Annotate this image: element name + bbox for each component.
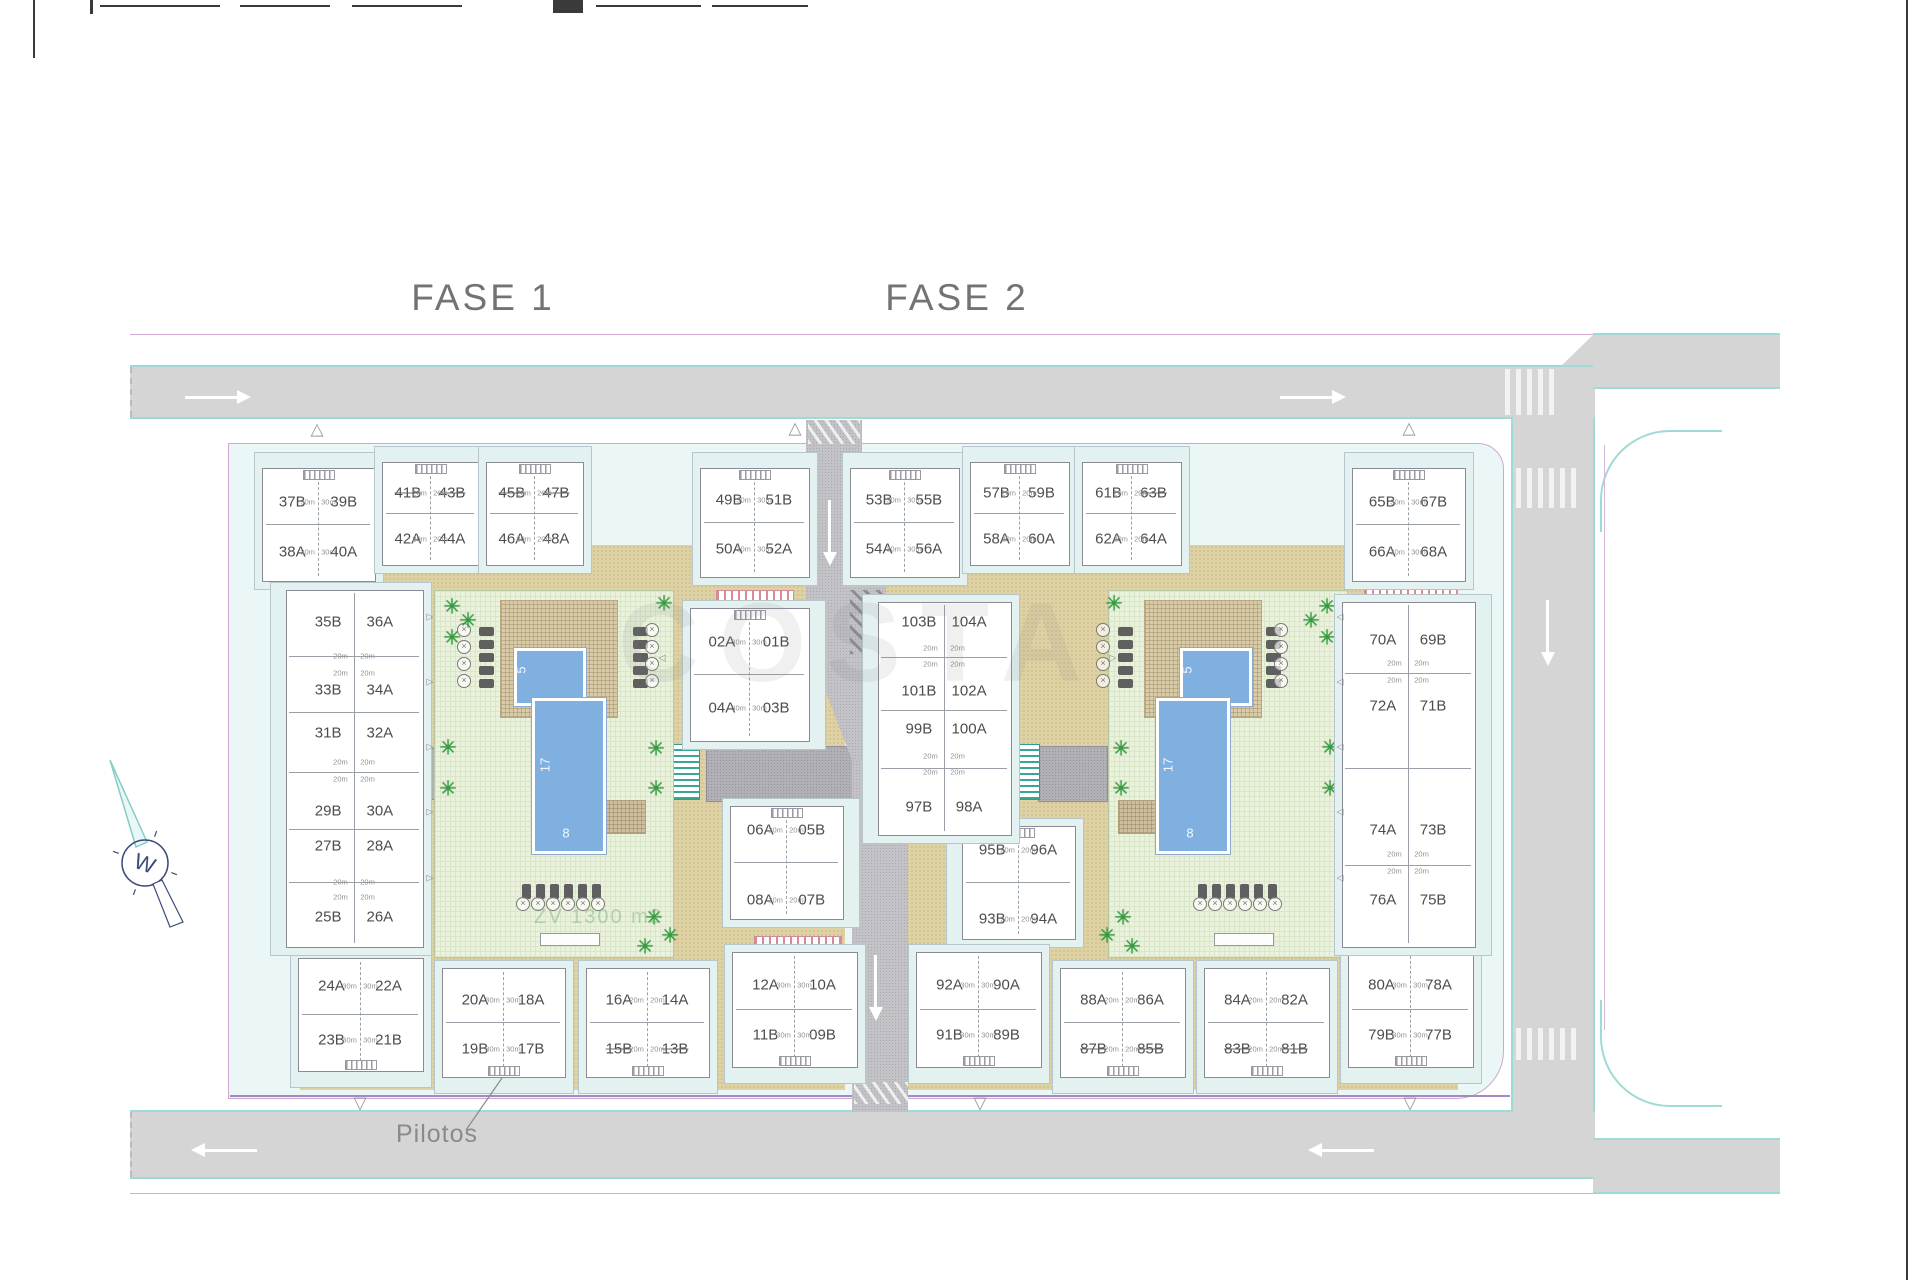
parasol-icon: × (1253, 897, 1267, 911)
wall-line (704, 522, 804, 523)
unit-label: 92A (936, 978, 963, 993)
area-label: 30m 30m (1392, 981, 1427, 989)
unit-label: 28A (366, 839, 393, 854)
unit-label: 73B (1420, 823, 1447, 838)
road-edge (1593, 333, 1780, 335)
palm-tree-icon: ✳ (1114, 908, 1132, 929)
door-triangle-icon: ◁ (1337, 874, 1344, 883)
compass-icon: W (50, 735, 190, 955)
palm-tree-icon: ✳ (1112, 779, 1130, 800)
parasol-icon: × (1208, 897, 1222, 911)
stairs-icon (963, 1056, 995, 1066)
stairs-icon (345, 1060, 377, 1070)
area-label: 20m 20m (333, 893, 375, 901)
unit-label: 72A (1370, 699, 1397, 714)
area-label: 30m 30m (886, 497, 921, 505)
unit-label: 87B (1080, 1042, 1107, 1057)
unit-label: 76A (1370, 893, 1397, 908)
unit-block (382, 462, 480, 566)
area-label: 20m 20m (1104, 997, 1139, 1005)
road-arrow-icon (823, 552, 837, 566)
wall-line (734, 862, 838, 863)
area-label: 20m 20m (333, 669, 375, 677)
give-way-chevrons (808, 420, 860, 444)
unit-label: 80A (1368, 978, 1395, 993)
wall-line (966, 882, 1070, 883)
unit-block (298, 958, 424, 1072)
stairs-icon (1393, 470, 1425, 480)
unit-label: 98A (956, 800, 983, 815)
pool-dim-width: 8 (562, 826, 569, 841)
area-label: 20m 20m (1387, 659, 1429, 667)
deck-patch (1118, 800, 1160, 834)
unit-label: 85B (1137, 1042, 1164, 1057)
area-label: 30m 30m (776, 1031, 811, 1039)
unit-label: 89B (993, 1028, 1020, 1043)
area-label: 30m 30m (300, 548, 335, 556)
palm-tree-icon: ✳ (1098, 926, 1116, 947)
road-bottom-east (1593, 1140, 1780, 1192)
parasol-icon: × (1274, 657, 1288, 671)
unit-label: 70A (1370, 633, 1397, 648)
unit-block (586, 968, 710, 1078)
unit-block (1204, 968, 1330, 1078)
unit-label: 91B (936, 1028, 963, 1043)
road-arrow-icon (1332, 390, 1346, 404)
unit-label: 12A (752, 978, 779, 993)
palm-tree-icon: ✳ (443, 597, 461, 618)
door-triangle-icon: ◁ (1337, 808, 1344, 817)
unit-label: 32A (366, 726, 393, 741)
frame-mark (712, 5, 808, 7)
site-plan: FASE 1 FASE 2 1785××××××××××××××✳✳✳✳✳✳✳✳… (0, 0, 1920, 1280)
area-label: 20m 20m (333, 652, 375, 660)
wall-line (354, 593, 355, 943)
road-arrow-icon (869, 1007, 883, 1021)
parcel-line (1604, 445, 1605, 1030)
unit-label: 14A (662, 993, 689, 1008)
pool-dim-length: 17 (538, 758, 553, 772)
road-edge (1593, 417, 1595, 1112)
wall-line (302, 1014, 418, 1015)
parasol-icon: × (1238, 897, 1252, 911)
road-edge (130, 365, 1593, 367)
wall-line (289, 712, 419, 713)
area-label: 20m 20m (1000, 846, 1035, 854)
area-label: 30m 30m (736, 497, 771, 505)
area-label: 20m 20m (768, 826, 803, 834)
stairs-icon (1004, 464, 1036, 474)
pool-dim-kids: 5 (514, 666, 529, 673)
lounger (1118, 666, 1133, 675)
fase1-title: FASE 1 (411, 277, 554, 319)
unit-block (1060, 968, 1186, 1078)
area-label: 20m 20m (1104, 1045, 1139, 1053)
unit-label: 33B (315, 683, 342, 698)
unit-label: 81B (1281, 1042, 1308, 1057)
wall-line (1345, 768, 1471, 769)
unit-label: 79B (1368, 1028, 1395, 1043)
parasol-icon: × (1274, 640, 1288, 654)
unit-label: 26A (366, 910, 393, 925)
lounger (479, 679, 494, 688)
area-label: 20m 20m (333, 775, 375, 783)
pool-bench (540, 933, 600, 946)
unit-label: 90A (993, 978, 1020, 993)
road-edge (1593, 1192, 1780, 1194)
wall-line (1208, 1022, 1324, 1023)
stairs-icon (415, 464, 447, 474)
area-label: 20m 20m (412, 535, 447, 543)
stairs-icon (1116, 464, 1148, 474)
unit-label: 74A (1370, 823, 1397, 838)
unit-label: 71B (1420, 699, 1447, 714)
unit-label: 84A (1224, 993, 1251, 1008)
area-label: 20m 20m (412, 489, 447, 497)
unit-label: 30A (366, 804, 393, 819)
stairs-icon (519, 464, 551, 474)
unit-label: 83B (1224, 1042, 1251, 1057)
lounger (479, 653, 494, 662)
unit-label: 20A (462, 993, 489, 1008)
door-triangle-icon: ◁ (1337, 613, 1344, 622)
parasol-icon: × (1223, 897, 1237, 911)
crosswalk (1505, 369, 1559, 415)
lounger (479, 666, 494, 675)
door-triangle-icon: ▷ (427, 874, 434, 883)
road-arrow-icon (874, 955, 877, 1007)
palm-tree-icon: ✳ (1112, 739, 1130, 760)
palm-tree-icon: ✳ (439, 779, 457, 800)
wall-line (289, 829, 419, 830)
frame-mark (90, 0, 93, 14)
palm-tree-icon: ✳ (459, 611, 477, 632)
parcel-corner-ne (1600, 430, 1722, 532)
lounger (1118, 653, 1133, 662)
unit-label: 69B (1420, 633, 1447, 648)
road-arrow-icon (1308, 1143, 1322, 1157)
palm-tree-icon: ✳ (443, 628, 461, 649)
unit-label: 97B (906, 800, 933, 815)
fase2-title: FASE 2 (885, 277, 1028, 319)
entry-triangle-icon: ▽ (353, 1095, 366, 1112)
unit-block (442, 968, 566, 1078)
crosswalk (1516, 1028, 1578, 1060)
unit-label: 17B (518, 1042, 545, 1057)
pool-dim-length: 17 (1161, 758, 1176, 772)
parasol-icon: × (1274, 674, 1288, 688)
unit-label: 31B (315, 726, 342, 741)
unit-label: 88A (1080, 993, 1107, 1008)
unit-label: 24A (318, 979, 345, 994)
pergola-bench (670, 744, 700, 800)
palm-tree-icon: ✳ (647, 779, 665, 800)
road-edge (130, 1110, 1513, 1112)
area-label: 20m 20m (516, 535, 551, 543)
palm-tree-icon: ✳ (636, 937, 654, 958)
wall-line (446, 1022, 560, 1023)
frame-mark (240, 5, 330, 7)
area-label: 30m 30m (485, 997, 520, 1005)
road-edge (130, 417, 1513, 419)
parasol-icon: × (1268, 897, 1282, 911)
area-label: 30m 30m (776, 981, 811, 989)
area-label: 30m 30m (1392, 1031, 1427, 1039)
road-arrow-icon (185, 396, 237, 399)
door-triangle-icon: ◁ (1337, 678, 1344, 687)
road-arrow-icon (1541, 652, 1555, 666)
lounger (1118, 640, 1133, 649)
wall-line (266, 524, 370, 525)
wall-line (1086, 513, 1176, 514)
unit-block (916, 952, 1042, 1068)
wall-line (881, 710, 1007, 711)
pedestrian-path (1038, 746, 1108, 802)
door-triangle-icon: ▷ (427, 808, 434, 817)
unit-label: 11B (753, 1028, 779, 1043)
area-label: 30m 30m (342, 1036, 377, 1044)
road-top-east (1593, 335, 1780, 387)
wall-line (974, 513, 1064, 514)
wall-line (590, 1022, 704, 1023)
area-label: 20m 20m (1001, 489, 1036, 497)
stairs-icon (1395, 1056, 1427, 1066)
area-label: 20m 20m (629, 1045, 664, 1053)
parasol-icon: × (457, 674, 471, 688)
pool-dim-kids: 5 (1180, 666, 1195, 673)
area-label: 20m 20m (333, 878, 375, 886)
door-triangle-icon: ◁ (1337, 743, 1344, 752)
unit-label: 27B (315, 839, 342, 854)
road-arrow-icon (1322, 1149, 1374, 1152)
stairs-icon (488, 1066, 520, 1076)
entry-triangle-icon: ▽ (973, 1095, 986, 1112)
unit-label: 29B (315, 804, 342, 819)
stairs-icon (771, 808, 803, 818)
stairs-icon (1251, 1066, 1283, 1076)
area-label: 30m 30m (960, 981, 995, 989)
crosswalk (1516, 468, 1578, 508)
palm-tree-icon: ✳ (439, 738, 457, 759)
lounger (1118, 627, 1133, 636)
area-label: 20m 20m (1387, 850, 1429, 858)
frame-mark (100, 5, 220, 7)
door-triangle-icon: ▷ (427, 743, 434, 752)
unit-label: 15B (606, 1042, 633, 1057)
area-label: 30m 30m (1390, 548, 1425, 556)
unit-label: 13B (662, 1042, 689, 1057)
lounger (479, 640, 494, 649)
wall-line (490, 513, 578, 514)
palm-tree-icon: ✳ (647, 739, 665, 760)
entry-triangle-icon: △ (788, 420, 801, 437)
entry-triangle-icon: ▽ (1403, 1095, 1416, 1112)
unit-label: 22A (375, 979, 402, 994)
unit-label: 100A (952, 722, 987, 737)
entry-triangle-icon: △ (310, 421, 323, 438)
lounger (1118, 679, 1133, 688)
unit-label: 23B (318, 1032, 345, 1047)
area-label: 20m 20m (923, 768, 965, 776)
area-label: 20m 20m (1248, 1045, 1283, 1053)
road-bottom (130, 1112, 1595, 1177)
area-label: 30m 30m (736, 545, 771, 553)
entry-triangle-icon: △ (1402, 420, 1415, 437)
unit-block (262, 468, 376, 582)
area-label: 20m 20m (1001, 535, 1036, 543)
stairs-icon (303, 470, 335, 480)
deck-patch (604, 800, 646, 834)
unit-label: 36A (366, 615, 393, 630)
unit-label: 86A (1137, 993, 1164, 1008)
unit-label: 21B (375, 1032, 402, 1047)
unit-block (732, 952, 858, 1068)
palm-tree-icon: ✳ (1123, 937, 1141, 958)
road-edge (130, 1177, 1593, 1179)
green-area-label: ZV 1300 m2 (534, 906, 663, 929)
road-arrow-icon (1280, 396, 1332, 399)
unit-label: 35B (315, 615, 342, 630)
stairs-icon (779, 1056, 811, 1066)
area-label: 20m 20m (768, 896, 803, 904)
unit-label: 19B (462, 1042, 489, 1057)
stairs-icon (739, 470, 771, 480)
area-label: 20m 20m (333, 758, 375, 766)
wall-line (1345, 673, 1471, 674)
frame-mark (596, 5, 701, 7)
unit-label: 99B (906, 722, 933, 737)
frame-mark (553, 0, 583, 13)
unit-label: 34A (366, 683, 393, 698)
wall-line (736, 1009, 852, 1010)
wall-line (1408, 605, 1409, 943)
area-label: 20m 20m (516, 489, 551, 497)
unit-label: 16A (606, 993, 633, 1008)
unit-block (1348, 952, 1474, 1068)
area-label: 30m 30m (1390, 498, 1425, 506)
road-top (130, 367, 1595, 417)
wall-line (854, 522, 954, 523)
palm-tree-icon: ✳ (1105, 594, 1123, 615)
area-label: 30m 30m (300, 498, 335, 506)
parasol-icon: × (457, 657, 471, 671)
wall-line (1064, 1022, 1180, 1023)
unit-label: 75B (1420, 893, 1447, 908)
unit-block (1082, 462, 1182, 566)
wall-line (1352, 1009, 1468, 1010)
road-top-chamfer (1560, 335, 1593, 367)
unit-label: 78A (1425, 978, 1452, 993)
area-label: 20m 20m (629, 997, 664, 1005)
parasol-icon: × (1193, 897, 1207, 911)
wall-line (289, 772, 419, 773)
pilotos-label: Pilotos (396, 1120, 478, 1149)
wall-line (1356, 524, 1460, 525)
stairs-icon (632, 1066, 664, 1076)
boundary-line-top (130, 334, 1780, 335)
stairs-icon (889, 470, 921, 480)
door-triangle-icon: ▷ (427, 678, 434, 687)
unit-label: 82A (1281, 993, 1308, 1008)
parcel-corner-se (1600, 1000, 1722, 1107)
area-label: 20m 20m (1248, 997, 1283, 1005)
unit-label: 25B (315, 910, 342, 925)
road-edge (1593, 1138, 1780, 1140)
area-label: 20m 20m (1113, 535, 1148, 543)
area-label: 20m 20m (1000, 915, 1035, 923)
frame-mark (1906, 0, 1908, 1280)
area-label: 30m 30m (886, 545, 921, 553)
area-label: 20m 20m (923, 752, 965, 760)
unit-strip (1342, 602, 1476, 948)
give-way-chevrons (854, 1082, 908, 1104)
pool-bench (1214, 933, 1274, 946)
frame-mark (33, 0, 35, 58)
parasol-icon: × (1274, 623, 1288, 637)
unit-label: 10A (809, 978, 836, 993)
unit-block (700, 468, 810, 578)
palm-tree-icon: ✳ (1302, 611, 1320, 632)
unit-block (970, 462, 1070, 566)
road-arrow-icon (1546, 600, 1549, 652)
area-label: 20m 20m (1387, 867, 1429, 875)
pool-dim-width: 8 (1186, 826, 1193, 841)
door-triangle-icon: ▷ (427, 613, 434, 622)
wall-line (920, 1009, 1036, 1010)
palm-tree-icon: ✳ (661, 926, 679, 947)
unit-block (1352, 468, 1466, 582)
area-label: 20m 20m (1113, 489, 1148, 497)
parasol-icon: × (516, 897, 530, 911)
watermark: COSTA (618, 578, 1102, 707)
unit-label: 09B (809, 1028, 836, 1043)
unit-block (486, 462, 584, 566)
road-edge (1593, 387, 1780, 389)
door-triangle-icon: ▷ (1110, 654, 1117, 663)
svg-text:W: W (131, 848, 159, 879)
road-edge (1511, 417, 1513, 1112)
road-right (1513, 417, 1593, 1112)
unit-block (850, 468, 960, 578)
wall-line (386, 513, 474, 514)
area-label: 30m 30m (342, 982, 377, 990)
compass-needle (110, 760, 147, 847)
stairs-icon (1107, 1066, 1139, 1076)
unit-label: 18A (518, 993, 545, 1008)
boundary-line-bottom (130, 1193, 1780, 1194)
unit-label: 77B (1425, 1028, 1452, 1043)
pedestrian-path (706, 746, 858, 802)
lounger (479, 627, 494, 636)
road-arrow-icon (828, 500, 831, 552)
frame-mark (352, 5, 462, 7)
area-label: 30m 30m (960, 1031, 995, 1039)
road-arrow-icon (205, 1149, 257, 1152)
area-label: 20m 20m (1387, 676, 1429, 684)
area-label: 30m 30m (485, 1045, 520, 1053)
road-arrow-icon (191, 1143, 205, 1157)
road-arrow-icon (237, 390, 251, 404)
